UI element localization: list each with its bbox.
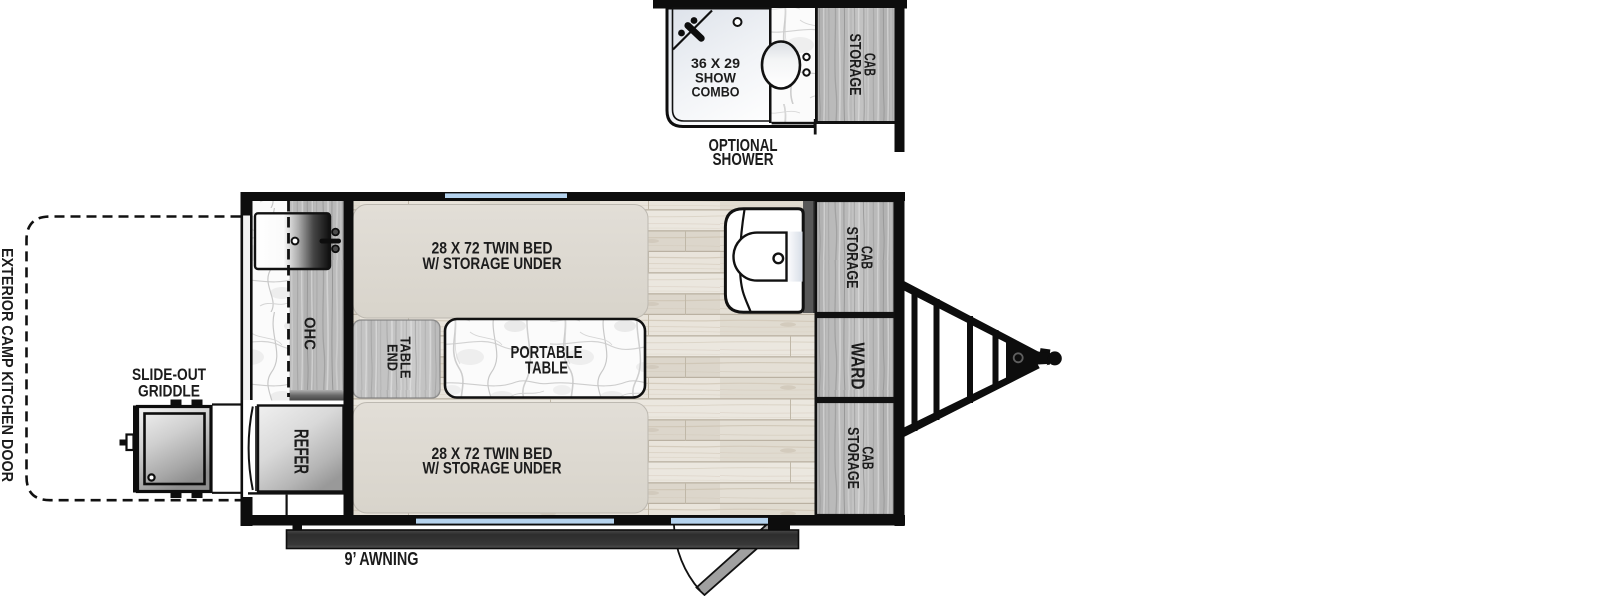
svg-text:CAB: CAB <box>860 53 877 76</box>
svg-text:TABLE: TABLE <box>525 357 568 377</box>
svg-text:36 X 29: 36 X 29 <box>691 55 740 71</box>
svg-text:9’ AWNING: 9’ AWNING <box>345 549 419 569</box>
svg-text:CAB: CAB <box>857 246 874 269</box>
svg-text:TABLE: TABLE <box>397 337 413 379</box>
svg-text:W/ STORAGE UNDER: W/ STORAGE UNDER <box>423 254 562 273</box>
svg-text:WARD: WARD <box>848 343 868 390</box>
svg-text:REFER: REFER <box>290 429 313 474</box>
svg-text:OHC: OHC <box>301 317 318 350</box>
svg-text:COMBO: COMBO <box>692 85 740 100</box>
svg-text:W/ STORAGE UNDER: W/ STORAGE UNDER <box>423 459 562 478</box>
svg-text:EXTERIOR CAMP KITCHEN DOOR: EXTERIOR CAMP KITCHEN DOOR <box>0 248 15 482</box>
svg-text:SHOW: SHOW <box>695 71 736 86</box>
svg-text:CAB: CAB <box>858 447 875 470</box>
svg-text:SHOWER: SHOWER <box>713 149 774 169</box>
svg-text:GRIDDLE: GRIDDLE <box>138 382 200 401</box>
